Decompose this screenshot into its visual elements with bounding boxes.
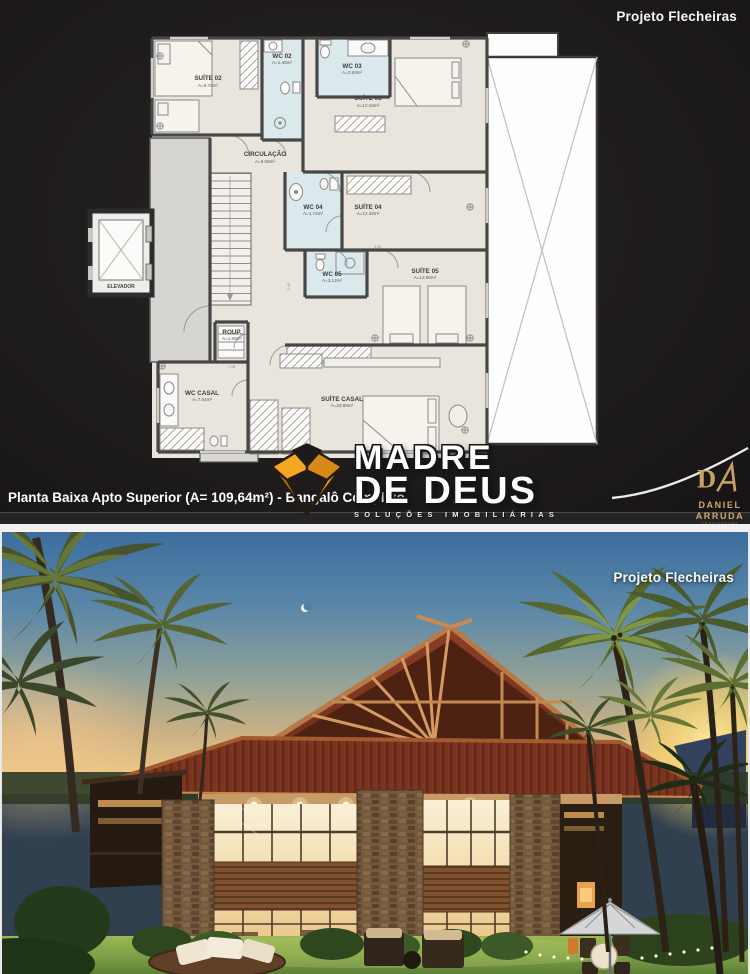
elevator: ELEVADOR xyxy=(88,211,152,295)
room-label-wccasal: WC CASAL xyxy=(185,390,219,397)
room-area-circulacao: A=9.06m² xyxy=(255,159,276,164)
room-label-suitecasal: SUÍTE CASAL xyxy=(321,394,363,403)
architect-name-line2: ARRUDA xyxy=(691,511,749,522)
architect-logo: D DANIEL ARRUDA ARQUITETURA xyxy=(691,461,749,526)
brand-watermark: MADRE DE DEUS SOLUÇÕES IMOBILIÁRIAS xyxy=(268,441,559,519)
room-area-suite02: A=8.70m² xyxy=(198,83,219,88)
room-area-wc02: A=1.48m² xyxy=(272,60,293,65)
presentation-board: Projeto Flecheiras xyxy=(0,0,750,974)
room-area-wc04: A=1.74m² xyxy=(303,211,324,216)
room-label-wc03: WC 03 xyxy=(342,63,362,70)
room-label-wc04: WC 04 xyxy=(303,204,323,211)
project-title: Projeto Flecheiras xyxy=(616,9,737,24)
room-label-suite05: SUÍTE 05 xyxy=(411,266,439,275)
watermark-line2: DE DEUS xyxy=(354,474,559,508)
room-area-suite04: A=12.32m² xyxy=(357,211,380,216)
room-area-roup: A=1.80m² xyxy=(222,336,243,341)
dim-340: 3.40 xyxy=(374,245,381,249)
roof-small xyxy=(487,33,558,57)
room-label-wc05: WC 05 xyxy=(322,271,342,278)
room-label-suite03: SUÍTE 03 xyxy=(354,93,382,102)
room-label-elevador: ELEVADOR xyxy=(107,284,135,290)
watermark-tagline: SOLUÇÕES IMOBILIÁRIAS xyxy=(354,512,559,519)
watermark-line1: MADRE xyxy=(354,443,559,474)
dim-108: 1.08 xyxy=(228,365,235,369)
dim-240: 2.40 xyxy=(287,283,291,290)
terrace-strip xyxy=(150,138,210,362)
room-area-wc05: A=3.12m² xyxy=(322,278,343,283)
room-area-suite03: A=12.04m² xyxy=(357,103,380,108)
house-render xyxy=(2,532,748,974)
floor-plan-panel: Projeto Flecheiras xyxy=(0,0,750,524)
room-area-wccasal: A=7.54m² xyxy=(192,397,213,402)
project-title-photo: Projeto Flecheiras xyxy=(613,570,734,585)
madre-de-deus-logo-icon xyxy=(268,441,346,519)
staircase xyxy=(209,173,251,305)
architect-name-line1: DANIEL xyxy=(691,500,749,511)
render-panel xyxy=(0,532,750,974)
room-area-wc03: A=2.93m² xyxy=(342,70,363,75)
svg-text:D: D xyxy=(697,464,716,494)
watermark-text: MADRE DE DEUS SOLUÇÕES IMOBILIÁRIAS xyxy=(354,443,559,519)
panel-divider xyxy=(0,524,750,532)
room-label-circulacao: CIRCULAÇÃO xyxy=(244,149,286,158)
room-label-suite04: SUÍTE 04 xyxy=(354,202,382,211)
room-area-suitecasal: A=23.80m² xyxy=(331,403,354,408)
room-label-roup: ROUP. xyxy=(222,329,241,336)
room-label-suite02: SUÍTE 02 xyxy=(194,73,222,82)
room-label-wc02: WC 02 xyxy=(272,53,292,60)
floor-plan-drawing: ELEVADOR SUÍTE 02 A=8.70m² WC 02 A=1.48m… xyxy=(80,28,605,468)
room-area-suite05: A=13.90m² xyxy=(414,275,437,280)
da-monogram-icon: D xyxy=(697,461,743,495)
